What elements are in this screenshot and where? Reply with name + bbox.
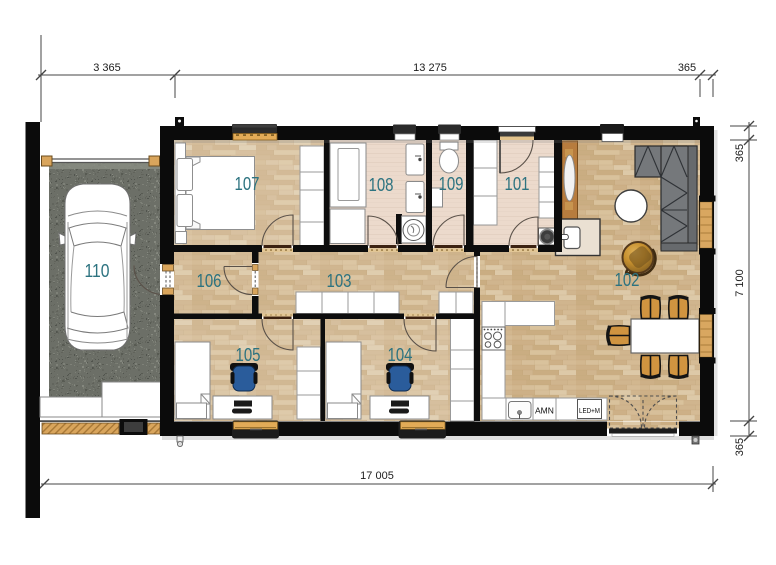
svg-text:101: 101 xyxy=(505,174,530,194)
svg-text:104: 104 xyxy=(388,345,413,365)
svg-text:110: 110 xyxy=(85,261,110,281)
svg-text:17 005: 17 005 xyxy=(360,470,394,482)
svg-text:AMN: AMN xyxy=(535,406,554,416)
svg-text:365: 365 xyxy=(678,62,696,74)
svg-text:109: 109 xyxy=(439,174,464,194)
svg-text:108: 108 xyxy=(369,175,394,195)
svg-text:102: 102 xyxy=(615,270,640,290)
svg-text:107: 107 xyxy=(235,174,260,194)
svg-text:106: 106 xyxy=(197,271,222,291)
svg-text:105: 105 xyxy=(236,345,261,365)
svg-text:365: 365 xyxy=(734,438,746,456)
svg-text:3 365: 3 365 xyxy=(93,62,121,74)
svg-text:13 275: 13 275 xyxy=(413,62,447,74)
svg-text:365: 365 xyxy=(734,144,746,162)
svg-text:7 100: 7 100 xyxy=(734,269,746,297)
svg-text:LED+M: LED+M xyxy=(579,406,600,415)
svg-text:103: 103 xyxy=(327,271,352,291)
